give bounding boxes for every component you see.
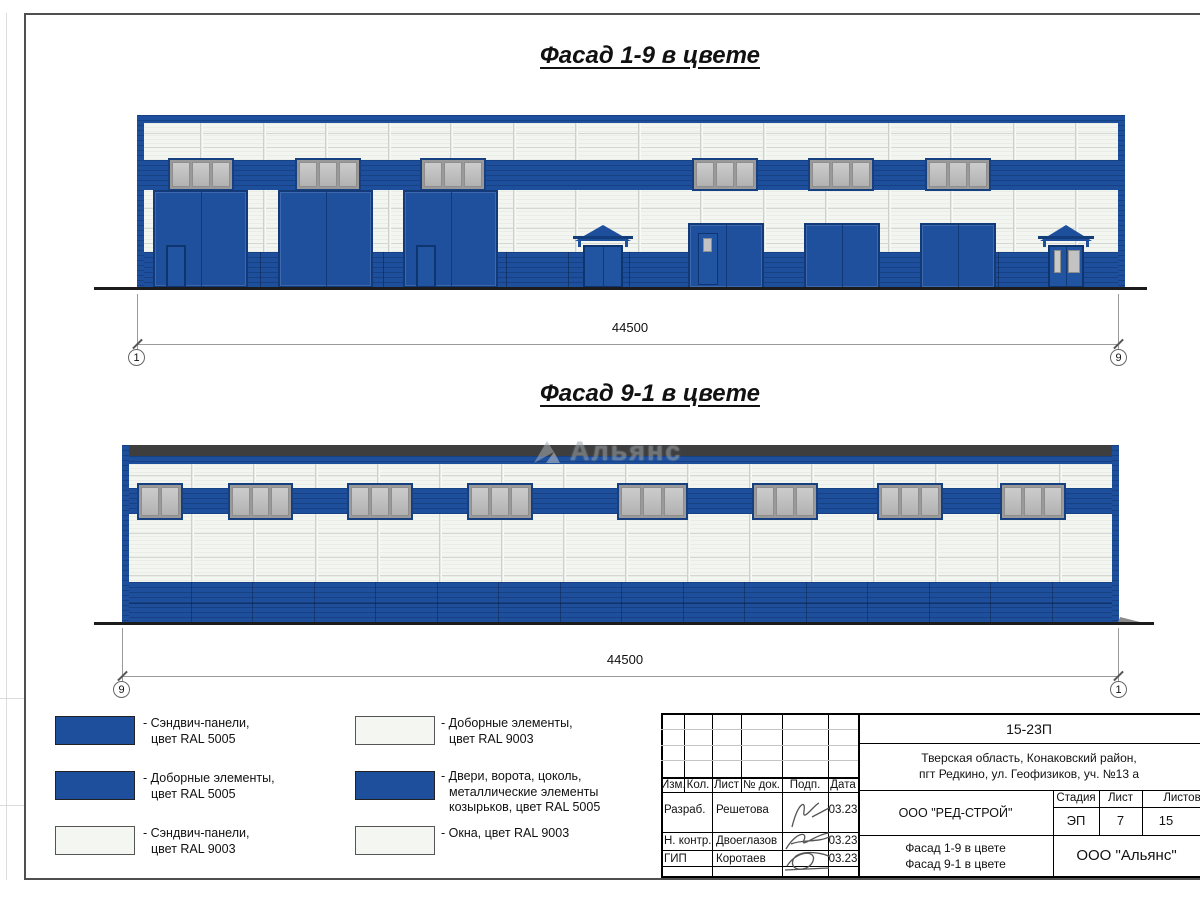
facade-window: [467, 483, 533, 520]
watermark-text: Альянс: [570, 436, 682, 467]
plinth-joint: [867, 582, 868, 623]
sectional-gate: [278, 190, 373, 288]
window-pane: [1004, 487, 1022, 516]
facade-window: [808, 158, 874, 191]
plinth-joint: [744, 582, 745, 623]
stage-label: Стадия: [1053, 792, 1099, 804]
legend-label-line: цвет RAL 9003: [441, 732, 573, 748]
facade-window: [137, 483, 183, 520]
person-door: [698, 233, 718, 285]
panel-mullion: [1059, 464, 1062, 582]
facade-window: [617, 483, 688, 520]
canopy-edge: [573, 236, 633, 239]
panel-mullion: [749, 464, 752, 582]
window-pane: [192, 162, 210, 187]
window-pane: [511, 487, 529, 516]
service-gate: [804, 223, 880, 289]
window-pane: [424, 162, 442, 187]
project-address-line1: Тверская область, Конаковский район,: [858, 751, 1200, 765]
plinth-zone: [129, 582, 1112, 623]
facade-window: [752, 483, 818, 520]
canopy-post: [1043, 239, 1046, 247]
name-ncontrol: Двоеглазов: [716, 835, 777, 847]
facade-window: [877, 483, 943, 520]
window-pane: [1024, 487, 1042, 516]
role-gip: ГИП: [664, 853, 687, 865]
sheet-margin-divider: [0, 805, 24, 806]
legend-label: - Сэндвич-панели,цвет RAL 5005: [143, 716, 249, 747]
wicket-door: [166, 245, 186, 288]
sheet-frame-top: [24, 13, 1200, 15]
ground-line: [94, 622, 1154, 625]
legend-label-line: - Доборные элементы,: [143, 771, 275, 787]
legend-swatch-white: [55, 826, 135, 855]
plinth-joint: [383, 252, 384, 288]
window-pane: [716, 162, 734, 187]
legend-label-line: металлические элементы: [441, 785, 600, 801]
window-pane: [881, 487, 899, 516]
legend-label: - Доборные элементы,цвет RAL 9003: [441, 716, 573, 747]
sheet-value: 7: [1099, 813, 1142, 828]
facade-window: [168, 158, 234, 191]
plinth-joint: [621, 582, 622, 623]
panel-joint-line: [129, 475, 1112, 476]
window-pane: [736, 162, 754, 187]
window-pane: [212, 162, 230, 187]
panel-mullion: [873, 464, 876, 582]
plinth-joint: [375, 582, 376, 623]
facade-1-9-drawing: [137, 115, 1125, 288]
panel-joint-line: [129, 533, 1112, 534]
role-developer: Разраб.: [664, 804, 705, 816]
entrance-door: [583, 245, 623, 288]
legend-label-line: - Двери, ворота, цоколь,: [441, 769, 600, 785]
panel-joint-line: [144, 133, 1118, 134]
legend-label: - Окна, цвет RAL 9003: [441, 826, 569, 842]
plinth-joint: [260, 252, 261, 288]
panel-mullion: [501, 464, 504, 582]
sheet-margin-line: [6, 13, 7, 880]
window-pane: [319, 162, 337, 187]
col-list: Лист: [712, 779, 741, 791]
signature-gip: [781, 848, 833, 874]
plinth-joint: [437, 582, 438, 623]
window-pane: [391, 487, 409, 516]
panel-mullion: [191, 464, 194, 582]
window-pane: [756, 487, 774, 516]
window-pane: [643, 487, 663, 516]
window-pane: [161, 487, 179, 516]
legend-swatch-blue: [55, 771, 135, 800]
plinth-joint: [629, 252, 630, 288]
signature-developer: [788, 795, 832, 831]
gate-leaf-split: [958, 225, 959, 287]
alliance-logo-icon: [532, 439, 562, 465]
col-doc: № док.: [741, 779, 782, 791]
person-door-glass: [703, 238, 712, 252]
legend-swatch-blue: [55, 716, 135, 745]
name-gip: Коротаев: [716, 853, 766, 865]
window-pane: [299, 162, 317, 187]
legend-label: - Сэндвич-панели,цвет RAL 9003: [143, 826, 249, 857]
plinth-joint: [1052, 582, 1053, 623]
window-pane: [444, 162, 462, 187]
wall-field: [129, 464, 1112, 582]
stage-value: ЭП: [1053, 813, 1099, 828]
plinth-joint: [806, 582, 807, 623]
drawing-sheet: { "titles": { "facade19": "Фасад 1-9 в ц…: [0, 0, 1200, 900]
col-podp: Подп.: [782, 779, 828, 791]
axis-marker-1: 1: [128, 349, 145, 366]
service-gate: [920, 223, 996, 289]
plinth-joint: [191, 582, 192, 623]
legend-label-line: цвет RAL 5005: [143, 787, 275, 803]
window-pane: [812, 162, 830, 187]
plinth-joint: [568, 252, 569, 288]
window-pane: [776, 487, 794, 516]
legend-label-line: - Доборные элементы,: [441, 716, 573, 732]
window-pane: [271, 487, 289, 516]
facade-corner-column: [1112, 445, 1119, 623]
gate-leaf-split: [726, 225, 727, 287]
window-pane: [491, 487, 509, 516]
facade-corner-column: [137, 115, 144, 288]
panel-mullion: [625, 464, 628, 582]
sheet-frame-left: [24, 13, 26, 880]
window-pane: [232, 487, 250, 516]
date-developer: 03.23: [828, 804, 858, 816]
facade-9-1-title: Фасад 9-1 в цвете: [350, 380, 950, 408]
legend-swatch-white: [355, 716, 435, 745]
panel-joint-line: [144, 147, 1118, 148]
sheet-frame-bottom: [24, 878, 1200, 880]
window-pane: [929, 162, 947, 187]
plinth-joint: [929, 582, 930, 623]
sheet-subtitle-line2: Фасад 9-1 в цвете: [858, 857, 1053, 871]
facade-window: [925, 158, 991, 191]
facade-window: [228, 483, 293, 520]
door-glass: [1054, 250, 1061, 273]
legend-swatch-blue: [355, 771, 435, 800]
legend-label-line: цвет RAL 9003: [143, 842, 249, 858]
panel-mullion: [997, 464, 1000, 582]
company-watermark: Альянс: [532, 436, 682, 467]
gate-leaf-split: [842, 225, 843, 287]
window-pane: [921, 487, 939, 516]
dimension-line: [122, 676, 1119, 677]
legend-label: - Двери, ворота, цоколь,металлические эл…: [441, 769, 600, 816]
window-pane: [339, 162, 357, 187]
panel-mullion: [315, 464, 318, 582]
design-org: ООО "Альянс": [1053, 847, 1200, 864]
panel-mullion: [439, 464, 442, 582]
facade-9-1-drawing: [122, 445, 1119, 623]
plinth-joint: [498, 582, 499, 623]
legend-label: - Доборные элементы,цвет RAL 5005: [143, 771, 275, 802]
service-gate: [688, 223, 764, 289]
wicket-door: [416, 245, 436, 288]
door-leaf-split: [603, 247, 604, 286]
window-pane: [696, 162, 714, 187]
canopy-post: [1086, 239, 1089, 247]
facade-window: [1000, 483, 1066, 520]
facade-window: [420, 158, 486, 191]
legend-label-line: цвет RAL 5005: [143, 732, 249, 748]
facade-corner-column: [122, 445, 129, 623]
plinth-joint: [506, 252, 507, 288]
canopy-post: [625, 239, 628, 247]
panel-mullion: [563, 464, 566, 582]
panel-mullion: [687, 464, 690, 582]
sheet-margin-divider: [0, 698, 24, 699]
plinth-joint: [683, 582, 684, 623]
panel-joint-line: [129, 557, 1112, 558]
sheets-value: 15: [1142, 813, 1190, 828]
panel-joint-line: [129, 575, 1112, 576]
axis-marker-1: 1: [1110, 681, 1127, 698]
dimension-value: 44500: [555, 652, 695, 667]
plinth-joint: [990, 582, 991, 623]
facade-top-band: [137, 115, 1125, 123]
plinth-joint: [252, 582, 253, 623]
axis-marker-9: 9: [113, 681, 130, 698]
col-kol: Кол.: [684, 779, 712, 791]
entrance-door: [1048, 245, 1084, 288]
ground-line: [94, 287, 1147, 290]
doc-number: 15-23П: [858, 721, 1200, 737]
door-glass: [1068, 250, 1080, 273]
window-pane: [949, 162, 967, 187]
sheets-label: Листов: [1142, 792, 1200, 804]
plinth-joint: [314, 582, 315, 623]
panel-mullion: [253, 464, 256, 582]
window-pane: [471, 487, 489, 516]
facade-1-9-title: Фасад 1-9 в цвете: [350, 42, 950, 70]
window-pane: [371, 487, 389, 516]
canopy-post: [578, 239, 581, 247]
dimension-line: [137, 344, 1119, 345]
customer-company: ООО "РЕД-СТРОЙ": [858, 806, 1053, 820]
project-address-line2: пгт Редкино, ул. Геофизиков, уч. №13 а: [858, 767, 1200, 781]
legend-label-line: - Сэндвич-панели,: [143, 716, 249, 732]
legend-label-line: - Окна, цвет RAL 9003: [441, 826, 569, 842]
window-pane: [796, 487, 814, 516]
legend-label-line: - Сэндвич-панели,: [143, 826, 249, 842]
sheet-label: Лист: [1099, 792, 1142, 804]
facade-corner-column: [1118, 115, 1125, 288]
window-pane: [832, 162, 850, 187]
col-data: Дата: [828, 779, 858, 791]
gate-leaf-split: [326, 192, 327, 286]
panel-mullion: [935, 464, 938, 582]
gate-leaf-split: [201, 192, 202, 286]
window-pane: [664, 487, 684, 516]
window-pane: [1044, 487, 1062, 516]
title-block: Изм. Кол. Лист № док. Подп. Дата Разраб.…: [661, 713, 1200, 878]
window-pane: [172, 162, 190, 187]
window-pane: [969, 162, 987, 187]
plinth-joint: [560, 582, 561, 623]
window-pane: [852, 162, 870, 187]
window-pane: [901, 487, 919, 516]
window-pane: [252, 487, 270, 516]
facade-window: [347, 483, 413, 520]
plinth-joint: [998, 252, 999, 288]
window-pane: [464, 162, 482, 187]
panel-mullion: [811, 464, 814, 582]
name-developer: Решетова: [716, 804, 769, 816]
facade-window: [692, 158, 758, 191]
legend-label-line: козырьков, цвет RAL 5005: [441, 800, 600, 816]
col-izm: Изм.: [661, 779, 684, 791]
axis-marker-9: 9: [1110, 349, 1127, 366]
window-pane: [141, 487, 159, 516]
role-ncontrol: Н. контр.: [664, 835, 711, 847]
panel-mullion: [377, 464, 380, 582]
legend-swatch-white: [355, 826, 435, 855]
gate-leaf-split: [451, 192, 452, 286]
window-pane: [351, 487, 369, 516]
window-pane: [621, 487, 641, 516]
facade-window: [295, 158, 361, 191]
sheet-subtitle-line1: Фасад 1-9 в цвете: [858, 841, 1053, 855]
dimension-value: 44500: [560, 320, 700, 335]
